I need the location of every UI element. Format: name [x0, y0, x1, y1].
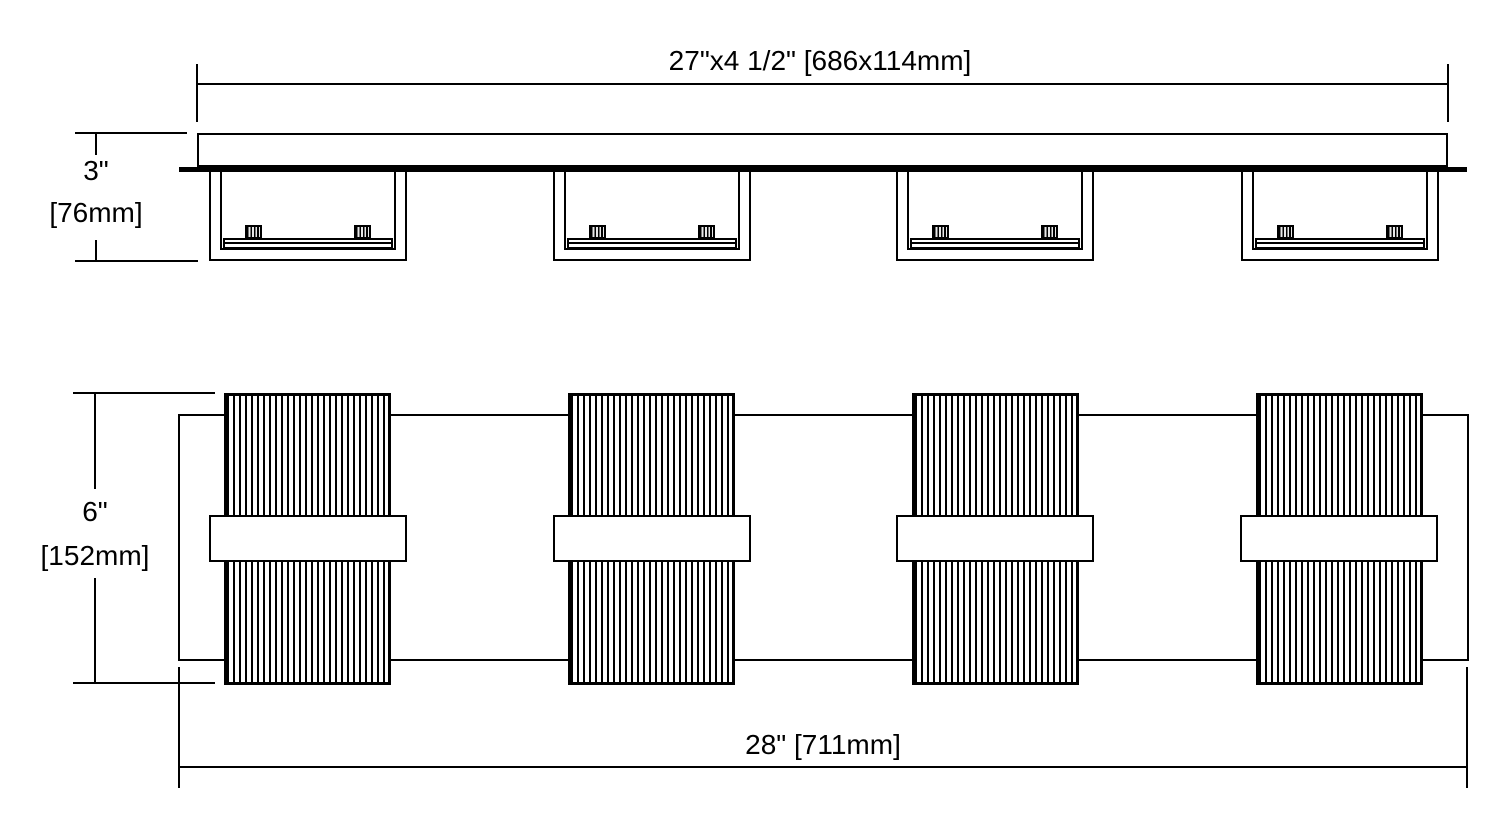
lamp-socket [698, 225, 715, 239]
lamp-socket [245, 225, 262, 239]
top-depth-dim-line-upper [95, 133, 97, 155]
top-depth-dim-label-mm: [76mm] [16, 197, 176, 229]
shade-band [553, 515, 751, 562]
top-depth-dim-ext-bottom [75, 260, 198, 262]
top-depth-dim-label-inches: 3" [36, 155, 156, 187]
lamp-socket [1386, 225, 1403, 239]
lamp-socket [589, 225, 606, 239]
socket-plate [223, 238, 393, 249]
top-width-dim-tick-right [1447, 64, 1449, 122]
lamp-socket [1041, 225, 1058, 239]
lamp-socket [1277, 225, 1294, 239]
socket-plate [567, 238, 737, 249]
socket-plate [910, 238, 1080, 249]
top-width-dim-line [197, 83, 1448, 85]
front-width-dim-label: 28" [711mm] [623, 729, 1023, 761]
front-width-dim-ext-left [178, 667, 180, 788]
top-width-dim-tick-left [196, 64, 198, 122]
mounting-bar [197, 133, 1448, 167]
top-width-dim-label: 27"x4 1/2" [686x114mm] [570, 45, 1070, 77]
dimension-drawing: 27"x4 1/2" [686x114mm] [0, 0, 1500, 840]
front-width-dim-line [178, 766, 1468, 768]
front-height-dim-line-upper [94, 393, 96, 489]
socket-plate-lip [1257, 242, 1423, 244]
shade-band [896, 515, 1094, 562]
front-height-dim-line-lower [94, 578, 96, 683]
socket-plate-lip [225, 242, 391, 244]
shade-band [209, 515, 407, 562]
front-height-dim-label-mm: [152mm] [15, 540, 175, 572]
lamp-socket [354, 225, 371, 239]
front-height-dim-label-inches: 6" [35, 496, 155, 528]
top-depth-dim-line-lower [95, 240, 97, 261]
front-width-dim-ext-right [1466, 667, 1468, 788]
socket-plate-lip [569, 242, 735, 244]
socket-plate [1255, 238, 1425, 249]
shade-band [1240, 515, 1438, 562]
top-depth-dim-ext-top [75, 132, 187, 134]
socket-plate-lip [912, 242, 1078, 244]
lamp-socket [932, 225, 949, 239]
